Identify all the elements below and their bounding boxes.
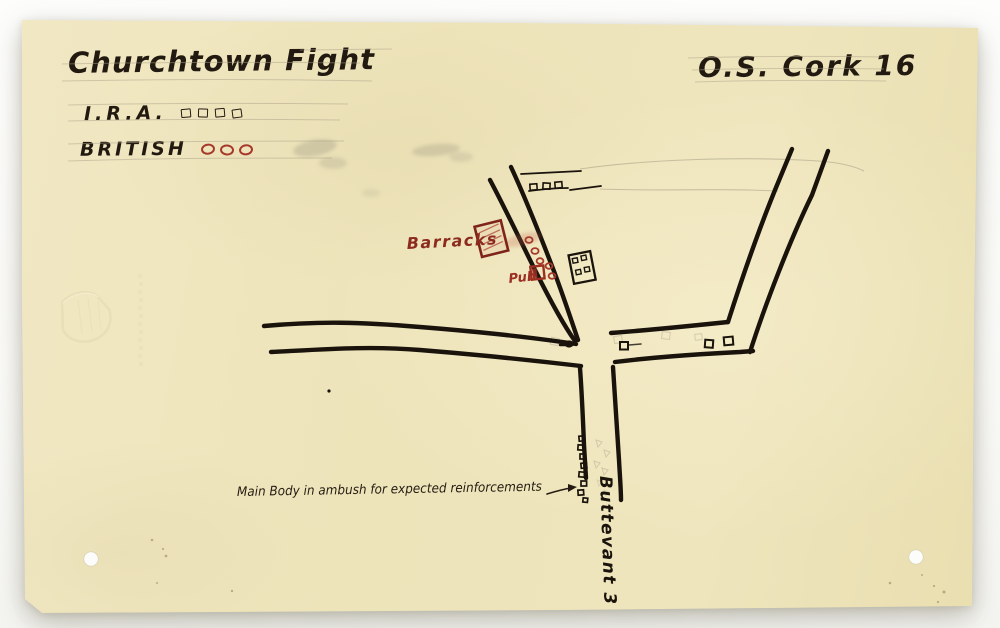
road-east-top-edge	[611, 322, 728, 333]
ambush-annotation: Main Body in ambush for expected reinfor…	[237, 480, 577, 500]
ambush-note-text: Main Body in ambush for expected reinfor…	[237, 480, 542, 500]
ruled-pencil-lines	[62, 49, 886, 161]
road-west-top-edge	[264, 323, 576, 344]
foxing-specks	[151, 539, 946, 603]
roads	[264, 149, 828, 500]
road-west-bottom-edge	[271, 348, 581, 366]
occupied-building	[569, 251, 596, 284]
annotation-arrow	[547, 484, 577, 494]
road-north-left-edge	[490, 180, 575, 341]
hole-punches	[84, 550, 923, 566]
paper-shadow: Churchtown Fight O.S. Cork 16 I.R.A. BRI…	[0, 0, 1000, 628]
punch-hole-left	[84, 552, 98, 566]
road-east-bottom-edge	[615, 351, 753, 362]
road-north-right-edge	[511, 167, 578, 340]
paper-sheet: Churchtown Fight O.S. Cork 16 I.R.A. BRI…	[0, 0, 1000, 628]
scanned-map-page: Churchtown Fight O.S. Cork 16 I.R.A. BRI…	[0, 0, 1000, 628]
sketch-map-canvas: Barracks Pub	[0, 0, 1000, 628]
road-northeast-right-edge	[750, 151, 828, 352]
junction-ira-markers	[560, 337, 733, 350]
road-northeast-left-edge	[728, 149, 792, 322]
pencil-marks	[62, 136, 864, 496]
punch-hole-right	[909, 550, 923, 564]
road-sign-buttevant: Buttevant 3	[595, 475, 620, 605]
road-south-left-edge	[580, 368, 586, 478]
stray-ink-dot	[327, 389, 330, 392]
embossed-stamp	[62, 274, 143, 366]
pub-label: Pub	[508, 269, 537, 287]
lane-north	[521, 171, 601, 191]
